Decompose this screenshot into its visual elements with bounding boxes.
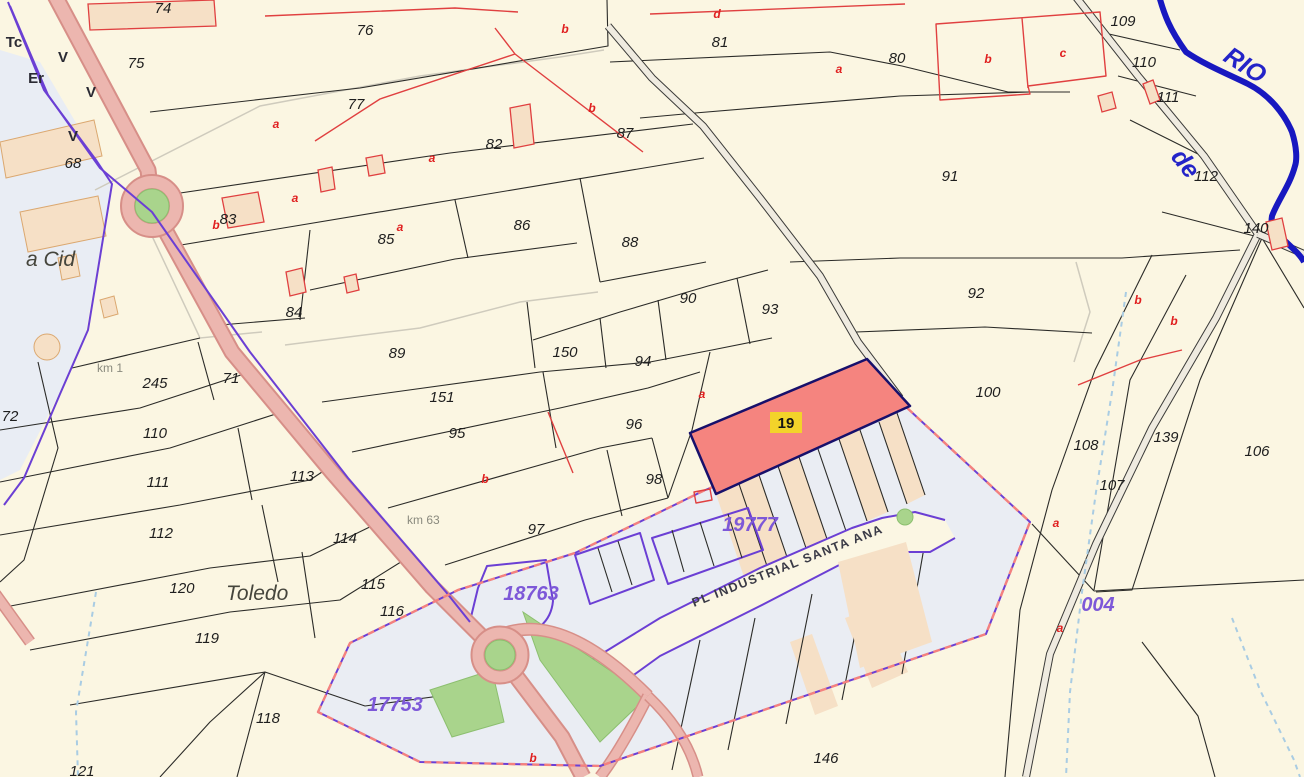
map-label-93: 93 xyxy=(762,301,779,318)
map-label-b: b xyxy=(561,22,568,36)
selected-parcel-number: 19 xyxy=(778,415,795,432)
map-label-77: 77 xyxy=(348,96,365,113)
map-label-119: 119 xyxy=(195,630,220,647)
map-label-94: 94 xyxy=(635,353,652,370)
map-label-b: b xyxy=(1170,314,1177,328)
buildings-and-red-outlines-shape-8 xyxy=(286,268,306,296)
map-label-004: 004 xyxy=(1081,594,1114,616)
map-label-89: 89 xyxy=(389,345,406,362)
cadastral-map-canvas[interactable]: 19 7475767781808791688283858688849093928… xyxy=(0,0,1304,777)
map-label-b: b xyxy=(529,751,536,765)
map-label-114: 114 xyxy=(333,530,357,547)
map-label-tc: Tc xyxy=(6,34,22,51)
map-label-83: 83 xyxy=(220,211,237,228)
map-label-toledo: Toledo xyxy=(226,582,289,605)
map-label-a: a xyxy=(273,117,280,131)
map-label-111: 111 xyxy=(147,474,170,491)
map-label-87: 87 xyxy=(617,125,634,142)
map-label-109: 109 xyxy=(1110,13,1136,30)
roundabout-south-shape-2 xyxy=(485,640,515,670)
map-label-112: 112 xyxy=(149,525,174,542)
map-label-75: 75 xyxy=(128,55,145,72)
map-label-151: 151 xyxy=(429,389,454,406)
map-label-150: 150 xyxy=(552,344,578,361)
map-label-c: c xyxy=(1060,46,1067,60)
map-label-85: 85 xyxy=(378,231,395,248)
map-label-a-cid: a Cid xyxy=(26,248,76,271)
map-label-107: 107 xyxy=(1099,477,1125,494)
map-label-b: b xyxy=(984,52,991,66)
map-label-68: 68 xyxy=(65,155,82,172)
map-label-140: 140 xyxy=(1243,220,1269,237)
map-label-v: V xyxy=(58,49,68,66)
map-label-90: 90 xyxy=(680,290,697,307)
map-label-96: 96 xyxy=(626,416,643,433)
map-label-er: Er xyxy=(28,70,44,87)
roundabout-south xyxy=(478,633,522,677)
buildings-and-red-outlines-shape-0 xyxy=(88,0,216,30)
map-label-106: 106 xyxy=(1244,443,1270,460)
map-label-110: 110 xyxy=(1132,54,1157,71)
map-label-86: 86 xyxy=(514,217,531,234)
map-label-110: 110 xyxy=(143,425,168,442)
map-label-116: 116 xyxy=(380,603,405,620)
map-label-118: 118 xyxy=(256,710,281,727)
map-label-108: 108 xyxy=(1073,437,1099,454)
selected-parcel-label: 19 xyxy=(770,412,802,433)
map-label-b: b xyxy=(212,218,219,232)
map-label-19777: 19777 xyxy=(722,514,778,536)
map-label-245: 245 xyxy=(141,375,168,392)
map-label-d: d xyxy=(713,7,721,21)
map-label-a: a xyxy=(292,191,299,205)
urban-area-left-shape-5 xyxy=(34,334,60,360)
roundabout-north xyxy=(128,182,176,230)
map-label-b: b xyxy=(1134,293,1141,307)
roundabout-north-shape-2 xyxy=(135,189,169,223)
map-label-a: a xyxy=(699,387,706,401)
map-label-92: 92 xyxy=(968,285,985,302)
map-label-91: 91 xyxy=(942,168,959,185)
buildings-and-red-outlines-shape-11 xyxy=(1098,92,1116,112)
map-label-84: 84 xyxy=(286,304,303,321)
map-label-76: 76 xyxy=(357,22,374,39)
map-label-80: 80 xyxy=(889,50,906,67)
buildings-and-red-outlines-shape-6 xyxy=(318,167,335,192)
buildings-and-red-outlines-shape-9 xyxy=(344,274,359,293)
map-label-88: 88 xyxy=(622,234,639,251)
map-label-146: 146 xyxy=(813,750,839,767)
map-label-115: 115 xyxy=(361,576,386,593)
map-label-km-63: km 63 xyxy=(407,513,440,527)
map-label-121: 121 xyxy=(69,763,94,777)
map-label-v: V xyxy=(86,84,96,101)
map-label-a: a xyxy=(397,220,404,234)
map-label-120: 120 xyxy=(169,580,195,597)
map-label-17753: 17753 xyxy=(367,694,423,716)
map-label-71: 71 xyxy=(223,370,240,387)
map-label-81: 81 xyxy=(712,34,729,51)
map-label-82: 82 xyxy=(486,136,503,153)
map-label-111: 111 xyxy=(1157,89,1180,106)
map-label-97: 97 xyxy=(528,521,545,538)
map-label-a: a xyxy=(1053,516,1060,530)
map-viewport[interactable]: 19 7475767781808791688283858688849093928… xyxy=(0,0,1304,777)
buildings-and-red-outlines-shape-7 xyxy=(366,155,385,176)
map-label-139: 139 xyxy=(1153,429,1179,446)
tree-circle xyxy=(897,509,913,525)
map-label-113: 113 xyxy=(290,468,315,485)
buildings-and-red-outlines-shape-4 xyxy=(510,104,534,148)
map-label-74: 74 xyxy=(155,0,172,17)
map-label-v: V xyxy=(68,128,78,145)
map-label-a: a xyxy=(429,151,436,165)
map-label-b: b xyxy=(481,472,488,486)
map-label-100: 100 xyxy=(975,384,1001,401)
map-label-a: a xyxy=(1057,621,1064,635)
map-label-18763: 18763 xyxy=(503,583,559,605)
map-label-b: b xyxy=(588,101,595,115)
map-label-98: 98 xyxy=(646,471,663,488)
map-label-72: 72 xyxy=(2,408,19,425)
map-label-a: a xyxy=(836,62,843,76)
map-label-km-1: km 1 xyxy=(97,361,123,375)
map-label-95: 95 xyxy=(449,425,466,442)
